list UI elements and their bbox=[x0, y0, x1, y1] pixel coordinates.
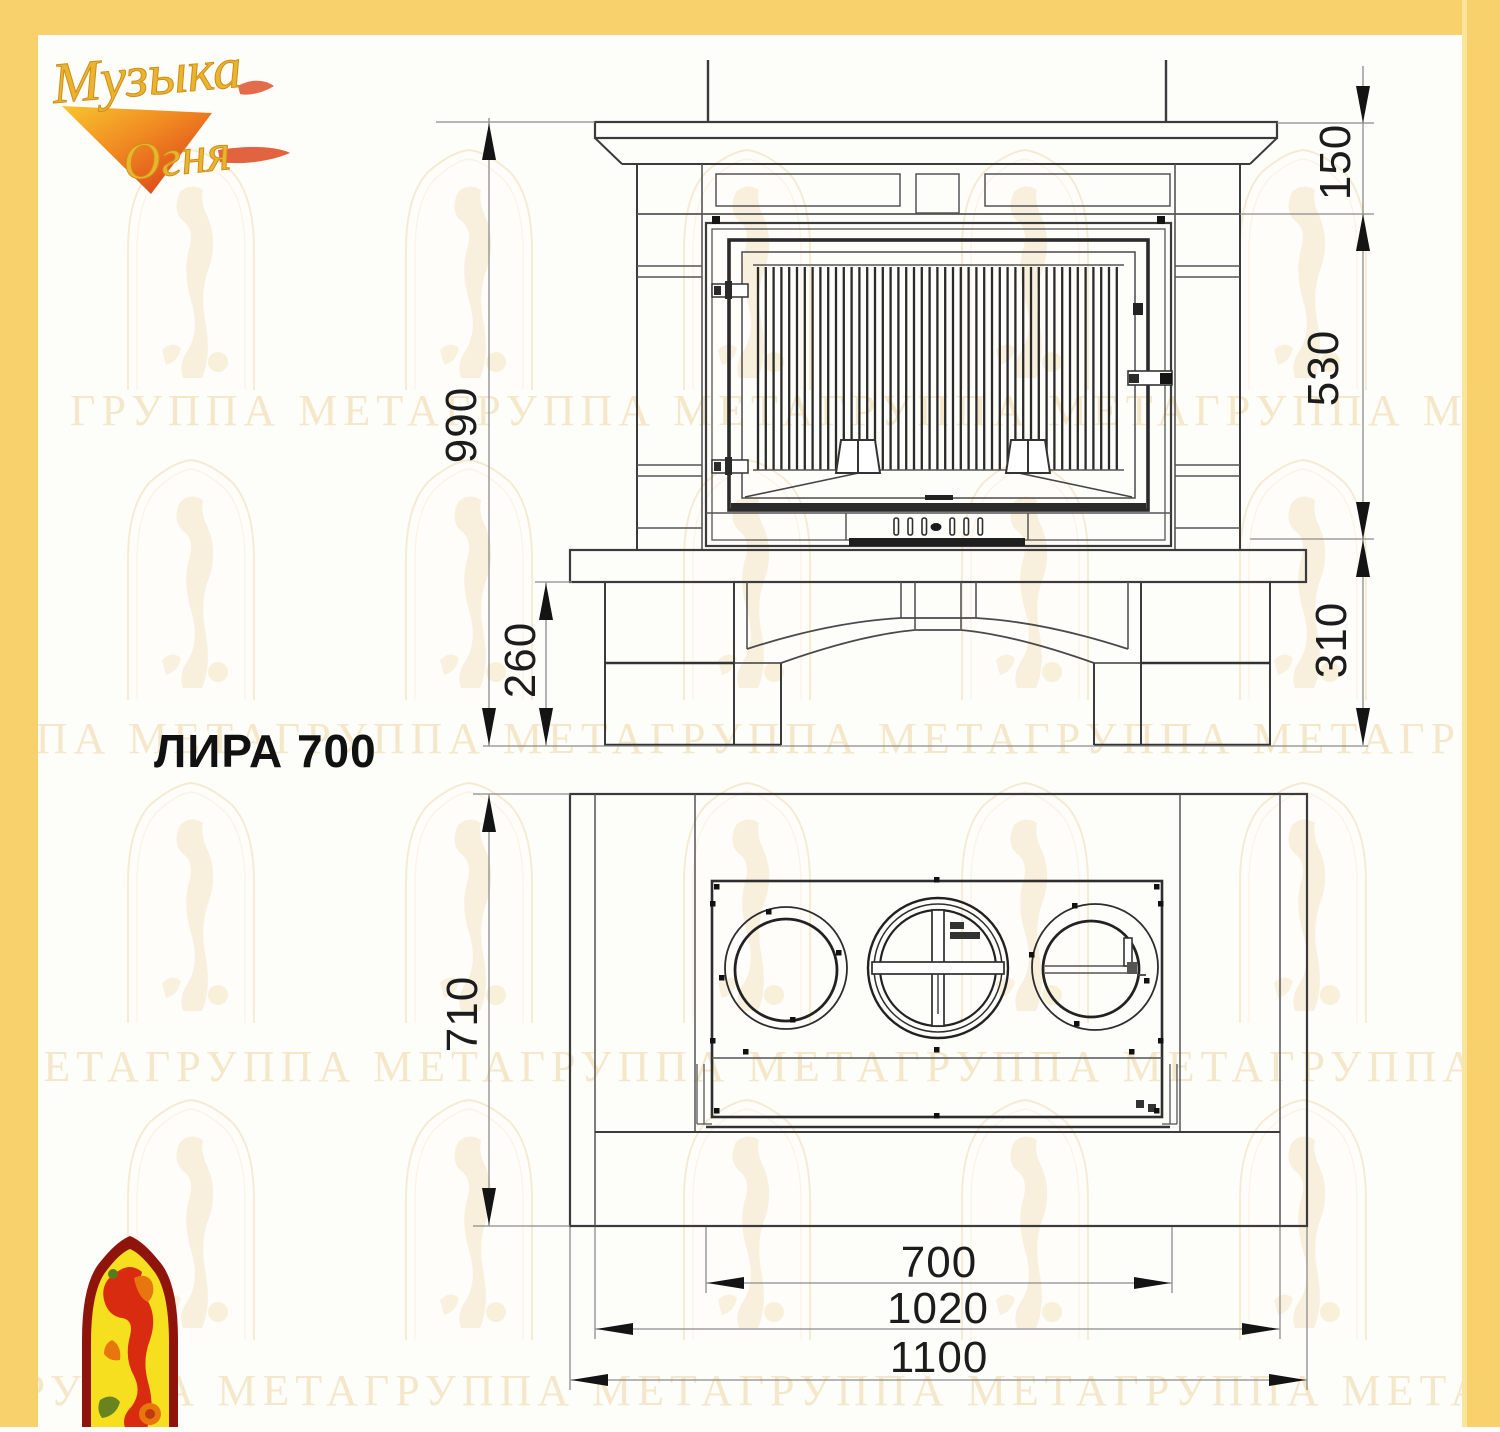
svg-text:1020: 1020 bbox=[887, 1284, 989, 1333]
svg-text:310: 310 bbox=[1307, 602, 1356, 678]
svg-text:Огня: Огня bbox=[120, 124, 233, 192]
svg-text:700: 700 bbox=[901, 1238, 977, 1287]
svg-text:150: 150 bbox=[1311, 124, 1360, 200]
svg-text:ЛИРА 700: ЛИРА 700 bbox=[154, 725, 377, 777]
svg-text:ГРУППА МЕТАГРУППА МЕТАГРУППА М: ГРУППА МЕТАГРУППА МЕТАГРУППА МЕТАГРУППА … bbox=[0, 1042, 1500, 1091]
svg-text:990: 990 bbox=[437, 387, 486, 463]
svg-text:260: 260 bbox=[496, 622, 545, 698]
svg-text:710: 710 bbox=[438, 976, 487, 1052]
svg-text:530: 530 bbox=[1299, 330, 1348, 406]
svg-text:1100: 1100 bbox=[890, 1333, 989, 1382]
svg-text:ГРУППА МЕТАГРУППА МЕТАГРУППА М: ГРУППА МЕТАГРУППА МЕТАГРУППА МЕТАГРУППА … bbox=[0, 1366, 1500, 1415]
svg-text:ГРУППА МЕТАГРУППА МЕТАГРУППА М: ГРУППА МЕТАГРУППА МЕТАГРУППА МЕТАГРУППА … bbox=[70, 386, 1500, 435]
svg-text:Музыка: Музыка bbox=[48, 35, 244, 116]
